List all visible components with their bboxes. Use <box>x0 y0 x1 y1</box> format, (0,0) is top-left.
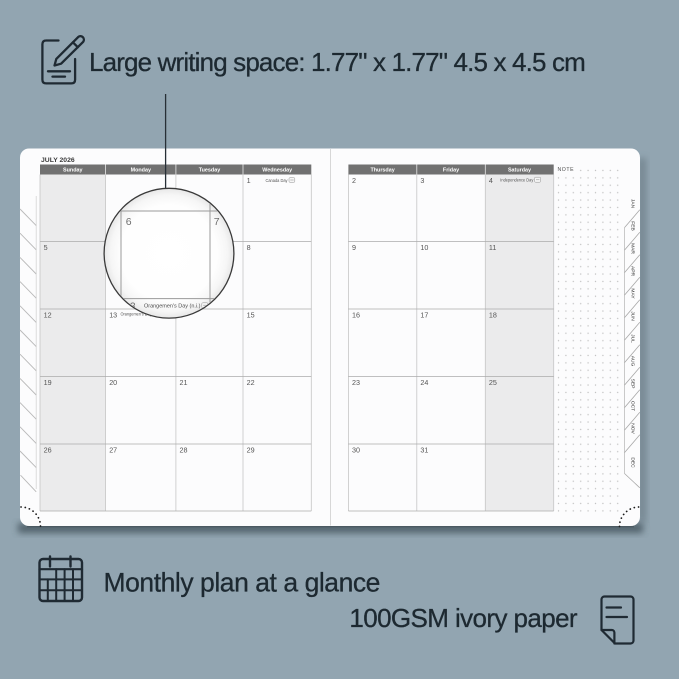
svg-text:OCT: OCT <box>630 401 636 411</box>
svg-text:12: 12 <box>44 311 52 320</box>
svg-text:Monthly plan at a glance: Monthly plan at a glance <box>104 568 380 598</box>
svg-text:4: 4 <box>489 176 493 185</box>
svg-text:Friday: Friday <box>443 168 459 174</box>
svg-text:Monday: Monday <box>131 168 151 174</box>
svg-text:APR: APR <box>630 266 636 277</box>
svg-text:Independence Day: Independence Day <box>500 178 534 183</box>
svg-text:Saturday: Saturday <box>508 168 531 174</box>
svg-text:NOTE: NOTE <box>558 167 575 173</box>
svg-text:28: 28 <box>180 446 188 455</box>
svg-text:19: 19 <box>44 378 52 387</box>
svg-text:20: 20 <box>109 378 117 387</box>
svg-text:21: 21 <box>180 378 188 387</box>
svg-text:5: 5 <box>44 243 48 252</box>
svg-text:16: 16 <box>352 311 360 320</box>
svg-text:JUL: JUL <box>630 334 636 343</box>
svg-text:NOV: NOV <box>630 423 636 434</box>
svg-text:26: 26 <box>44 446 52 455</box>
svg-text:Orangemen's Day (n.i.): Orangemen's Day (n.i.) <box>144 304 201 310</box>
svg-text:100GSM ivory paper: 100GSM ivory paper <box>349 603 578 633</box>
svg-text:FEB: FEB <box>630 221 636 231</box>
svg-text:25: 25 <box>489 378 497 387</box>
svg-text:23: 23 <box>352 378 360 387</box>
svg-text:JULY 2026: JULY 2026 <box>41 157 75 164</box>
svg-text:MAR: MAR <box>630 243 636 254</box>
svg-text:JUN: JUN <box>630 311 636 321</box>
svg-text:6: 6 <box>126 216 132 228</box>
svg-text:15: 15 <box>247 311 255 320</box>
svg-text:29: 29 <box>247 446 255 455</box>
svg-text:AUG: AUG <box>630 356 636 367</box>
svg-text:3: 3 <box>420 176 424 185</box>
svg-text:JAN: JAN <box>630 199 636 209</box>
svg-text:MAY: MAY <box>630 288 636 299</box>
svg-text:1: 1 <box>247 176 251 185</box>
svg-text:DEC: DEC <box>630 457 636 468</box>
svg-text:Thursday: Thursday <box>370 168 394 174</box>
svg-text:SEP: SEP <box>630 379 636 389</box>
svg-text:7: 7 <box>214 216 220 228</box>
svg-text:24: 24 <box>420 378 428 387</box>
svg-text:Canada Day: Canada Day <box>266 178 289 183</box>
svg-text:Wednesday: Wednesday <box>262 168 292 174</box>
svg-text:17: 17 <box>420 311 428 320</box>
svg-text:Large writing space: 1.77" x 1: Large writing space: 1.77" x 1.77" 4.5 x… <box>89 47 585 77</box>
svg-text:31: 31 <box>420 446 428 455</box>
svg-text:8: 8 <box>247 243 251 252</box>
svg-text:Tuesday: Tuesday <box>199 168 220 174</box>
svg-text:Sunday: Sunday <box>63 168 82 174</box>
svg-text:18: 18 <box>489 311 497 320</box>
svg-text:27: 27 <box>109 446 117 455</box>
svg-text:30: 30 <box>352 446 360 455</box>
svg-text:10: 10 <box>420 243 428 252</box>
svg-text:9: 9 <box>352 243 356 252</box>
svg-text:2: 2 <box>352 176 356 185</box>
svg-text:13: 13 <box>109 311 117 320</box>
svg-text:11: 11 <box>489 243 496 252</box>
svg-text:22: 22 <box>247 378 255 387</box>
